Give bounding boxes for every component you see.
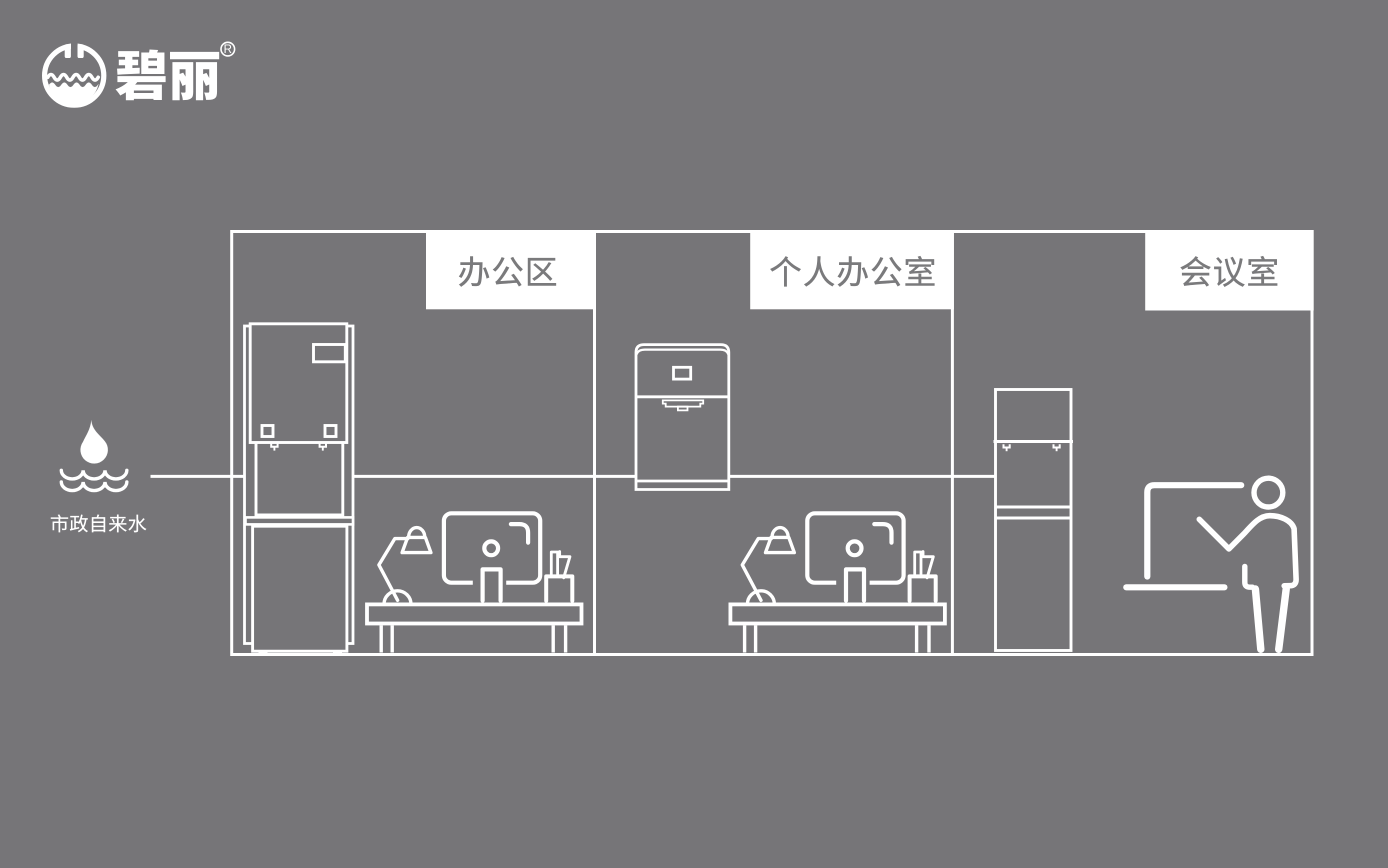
svg-text:R: R xyxy=(224,44,232,56)
